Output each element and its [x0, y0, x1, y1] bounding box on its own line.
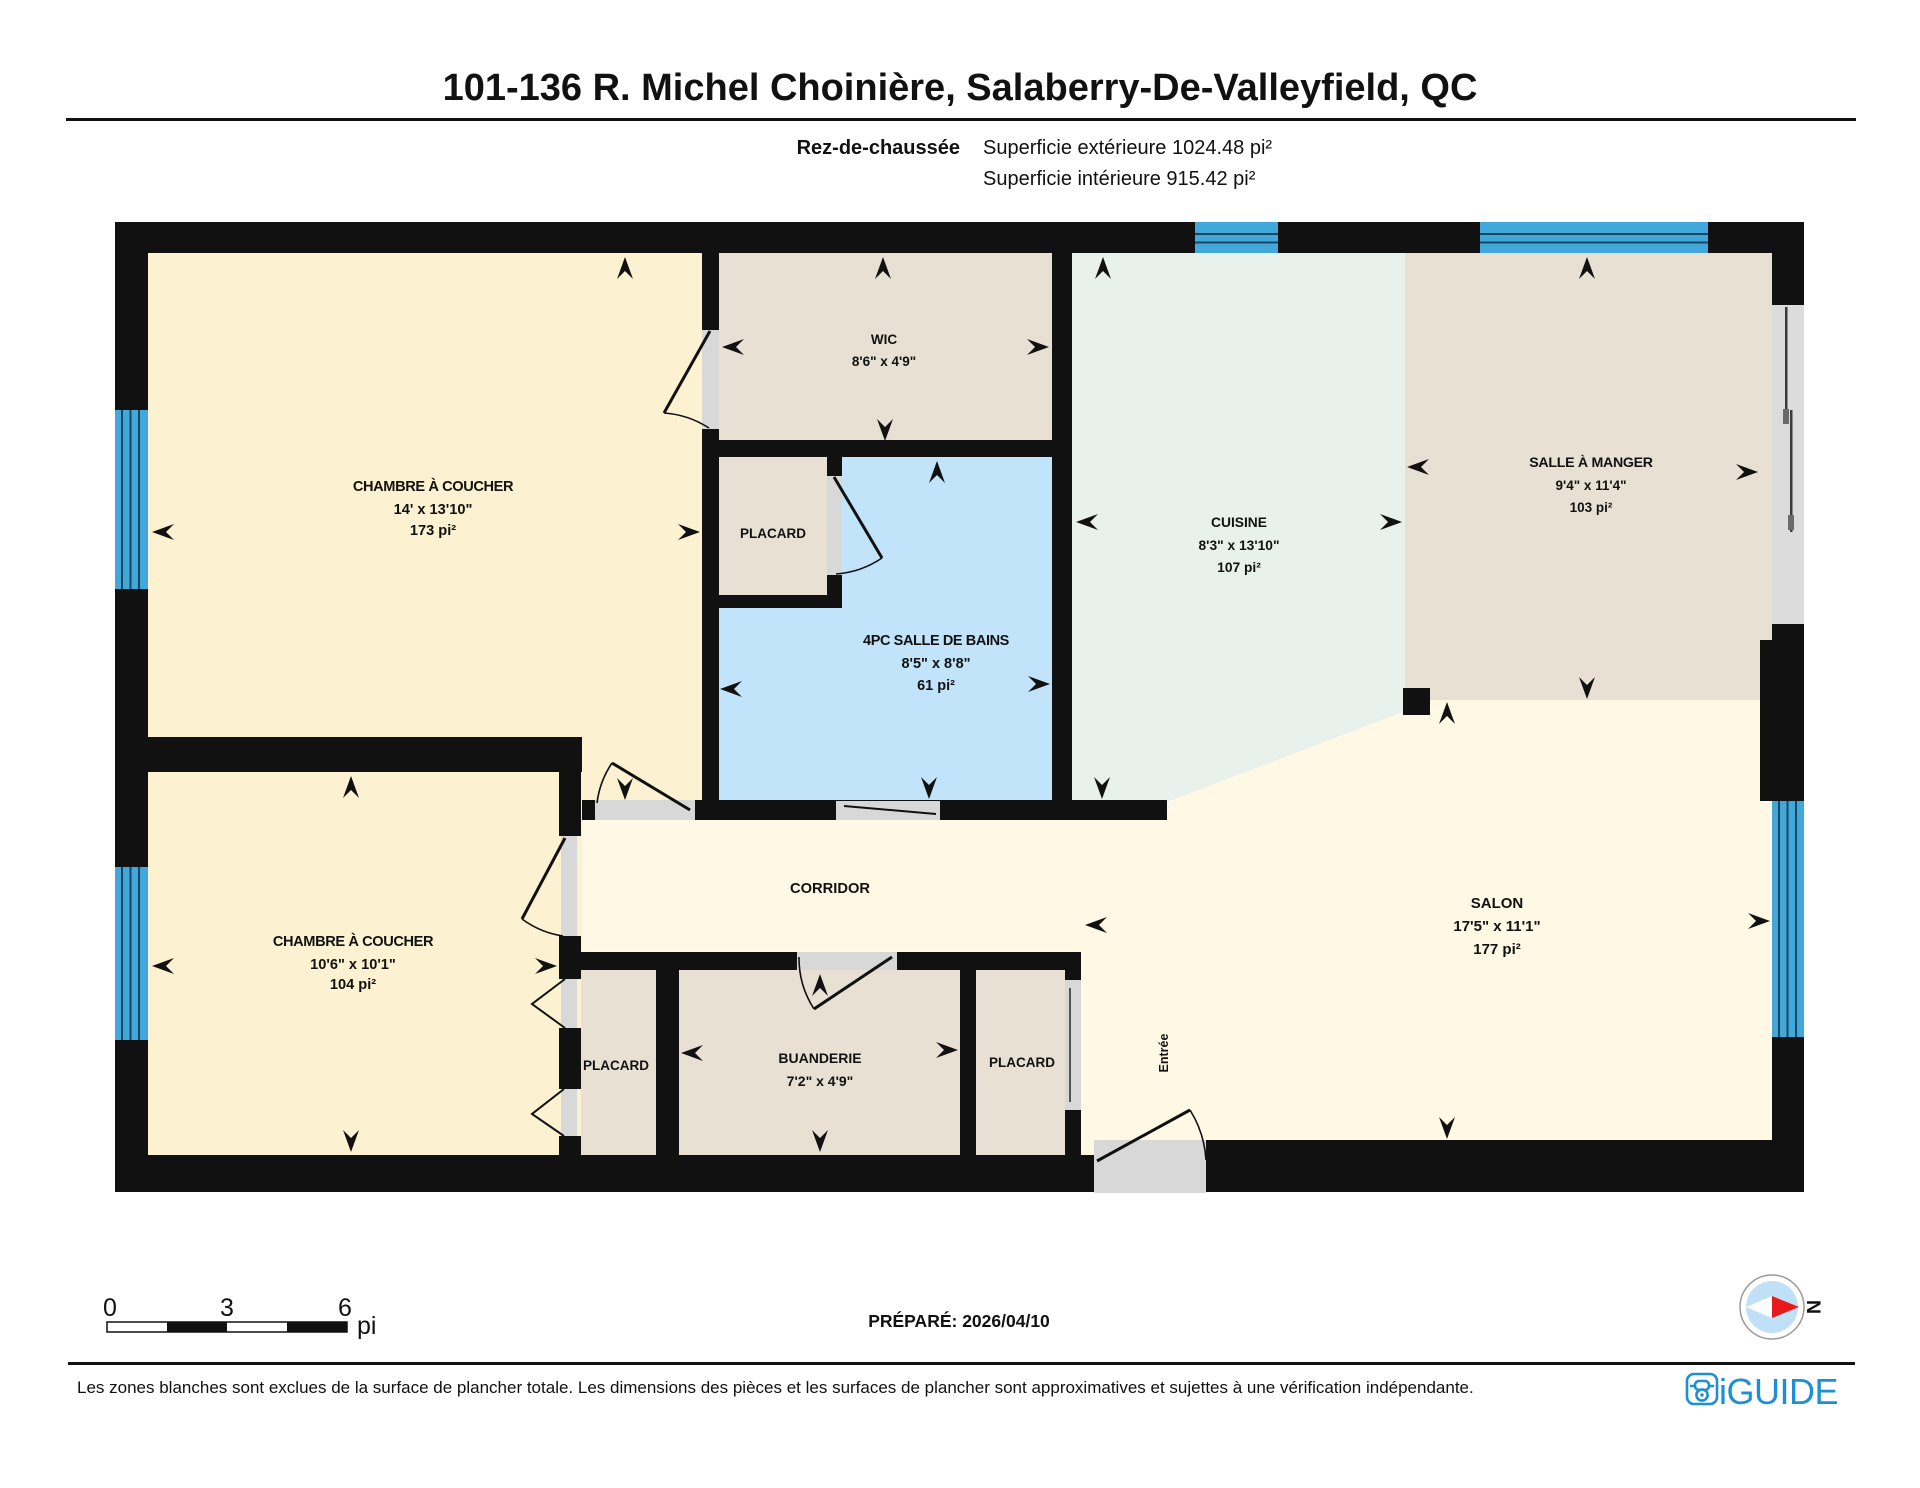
svg-text:N: N	[1802, 1300, 1824, 1314]
svg-text:Rez-de-chaussée: Rez-de-chaussée	[797, 137, 960, 159]
svg-text:BUANDERIE: BUANDERIE	[778, 1050, 861, 1066]
svg-text:14' x 13'10": 14' x 13'10"	[394, 502, 473, 518]
svg-text:8'5" x 8'8": 8'5" x 8'8"	[901, 656, 970, 672]
svg-text:CHAMBRE À COUCHER: CHAMBRE À COUCHER	[353, 478, 514, 495]
svg-text:SALLE À MANGER: SALLE À MANGER	[1529, 454, 1653, 471]
svg-text:61 pi²: 61 pi²	[917, 678, 955, 694]
svg-text:PRÉPARÉ: 2026/04/10: PRÉPARÉ: 2026/04/10	[868, 1310, 1050, 1331]
svg-text:104 pi²: 104 pi²	[330, 977, 376, 993]
svg-text:103 pi²: 103 pi²	[1570, 500, 1613, 515]
svg-text:8'6" x 4'9": 8'6" x 4'9"	[852, 354, 916, 369]
svg-text:9'4" x 11'4": 9'4" x 11'4"	[1555, 478, 1626, 493]
svg-text:17'5" x 11'1": 17'5" x 11'1"	[1453, 918, 1540, 935]
svg-text:iGUIDE: iGUIDE	[1719, 1371, 1838, 1412]
svg-text:CHAMBRE À COUCHER: CHAMBRE À COUCHER	[273, 933, 434, 950]
svg-text:6: 6	[338, 1294, 352, 1322]
svg-text:WIC: WIC	[871, 332, 897, 347]
svg-text:CUISINE: CUISINE	[1211, 515, 1267, 530]
svg-text:101-136 R. Michel Choinière, S: 101-136 R. Michel Choinière, Salaberry-D…	[443, 67, 1478, 109]
svg-text:Superficie extérieure 1024.48: Superficie extérieure 1024.48 pi²	[983, 137, 1272, 159]
svg-text:CORRIDOR: CORRIDOR	[790, 881, 870, 897]
svg-text:3: 3	[220, 1294, 234, 1322]
svg-text:PLACARD: PLACARD	[740, 526, 806, 541]
svg-text:SALON: SALON	[1471, 895, 1524, 912]
svg-text:4PC SALLE DE BAINS: 4PC SALLE DE BAINS	[863, 633, 1010, 649]
svg-text:107 pi²: 107 pi²	[1217, 560, 1261, 575]
svg-text:8'3" x 13'10": 8'3" x 13'10"	[1198, 538, 1279, 553]
svg-text:Les zones blanches sont exclue: Les zones blanches sont exclues de la su…	[77, 1378, 1474, 1397]
svg-text:Superficie intérieure 915.42 p: Superficie intérieure 915.42 pi²	[983, 168, 1256, 190]
svg-text:PLACARD: PLACARD	[583, 1058, 649, 1073]
svg-text:173 pi²: 173 pi²	[410, 523, 456, 539]
svg-text:7'2" x 4'9": 7'2" x 4'9"	[787, 1073, 854, 1089]
svg-text:pi: pi	[357, 1312, 376, 1340]
svg-text:Entrée: Entrée	[1157, 1034, 1171, 1073]
svg-text:PLACARD: PLACARD	[989, 1055, 1055, 1070]
svg-text:0: 0	[103, 1294, 117, 1322]
svg-text:10'6" x 10'1": 10'6" x 10'1"	[310, 957, 396, 973]
svg-text:177 pi²: 177 pi²	[1473, 941, 1521, 958]
